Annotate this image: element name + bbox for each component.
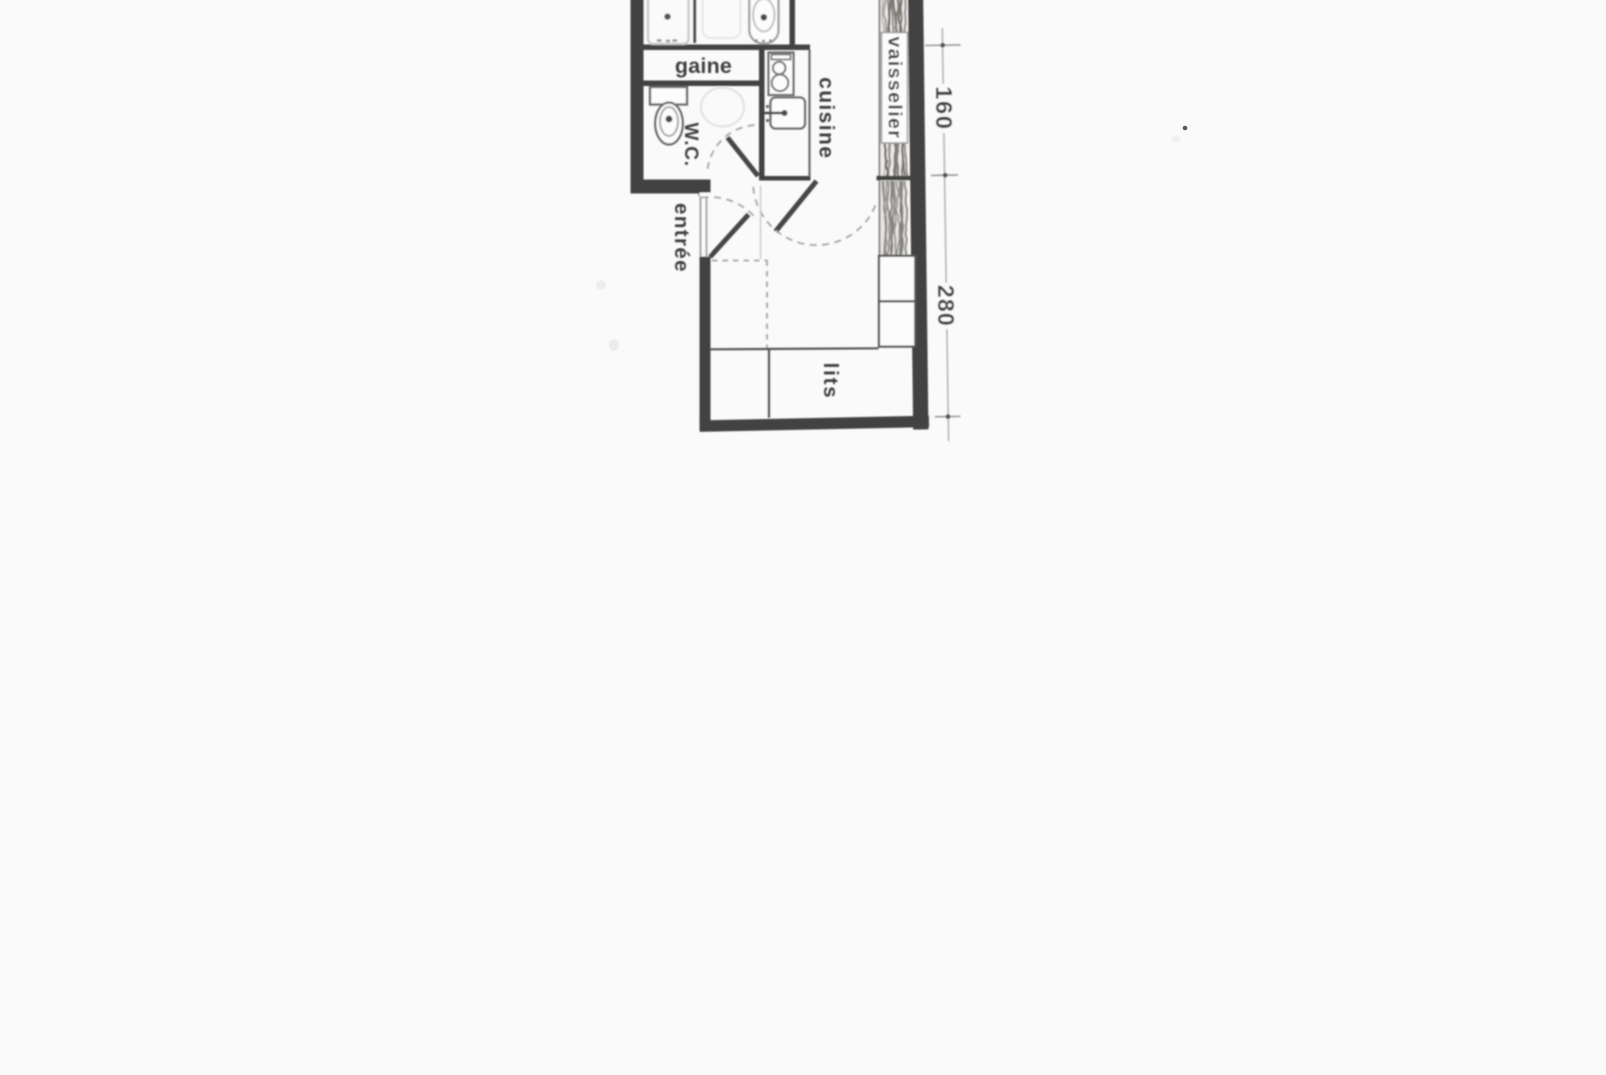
svg-text:280: 280 [933,285,959,327]
svg-text:vaisselier: vaisselier [884,36,906,139]
svg-text:160: 160 [931,86,957,131]
svg-text:W.C.: W.C. [680,123,701,167]
svg-text:gaine: gaine [675,54,732,78]
svg-text:entrée: entrée [670,203,693,273]
svg-text:lits: lits [819,363,842,400]
svg-text:cuisine: cuisine [814,77,837,159]
